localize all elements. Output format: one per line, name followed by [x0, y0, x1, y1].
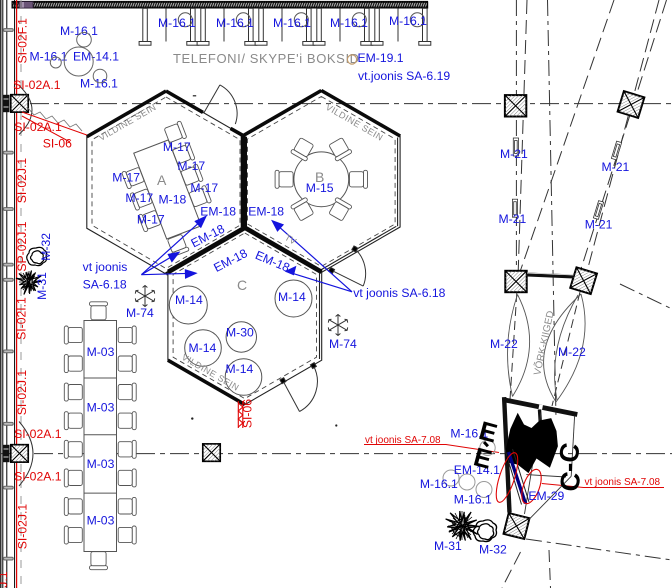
- svg-text:SI-02J.1: SI-02J.1: [15, 158, 29, 204]
- svg-text:vt joonis: vt joonis: [83, 260, 128, 274]
- svg-text:M-31: M-31: [434, 539, 462, 553]
- svg-text:M-14: M-14: [226, 362, 254, 376]
- svg-text:SI-02A.1: SI-02A.1: [14, 120, 62, 134]
- svg-text:SI-06: SI-06: [43, 137, 72, 151]
- svg-text:SI-02A.1: SI-02A.1: [14, 470, 62, 484]
- svg-text:M-14: M-14: [189, 341, 217, 355]
- svg-text:SI-02F.1: SI-02F.1: [16, 18, 30, 64]
- svg-text:M-16.1: M-16.1: [80, 77, 118, 91]
- svg-text:EM-18: EM-18: [248, 205, 284, 219]
- svg-text:M-16.1: M-16.1: [389, 14, 427, 28]
- svg-text:M-14: M-14: [278, 290, 306, 304]
- svg-text:SI-02J.1: SI-02J.1: [15, 370, 29, 416]
- svg-text:vt joonis SA-6.18: vt joonis SA-6.18: [353, 286, 445, 300]
- svg-text:M-32: M-32: [39, 233, 53, 261]
- svg-text:M-17: M-17: [125, 191, 153, 205]
- svg-text:M-17: M-17: [112, 171, 140, 185]
- svg-text:M-03: M-03: [87, 345, 115, 359]
- svg-text:M-15: M-15: [306, 181, 334, 195]
- svg-text:EM-19.1: EM-19.1: [358, 51, 404, 65]
- svg-text:vt joonis SA-7.08: vt joonis SA-7.08: [365, 435, 441, 446]
- svg-text:SA-6.18: SA-6.18: [83, 278, 127, 292]
- svg-text:SP-02J.1: SP-02J.1: [15, 221, 29, 271]
- svg-text:vt joonis SA-7.08: vt joonis SA-7.08: [585, 477, 661, 488]
- svg-text:M-21: M-21: [602, 160, 630, 174]
- svg-text:M-16.1: M-16.1: [216, 16, 254, 30]
- svg-text:SI-02I.1: SI-02I.1: [15, 297, 29, 340]
- svg-text:M-16.1: M-16.1: [330, 16, 368, 30]
- svg-text:C: C: [237, 277, 247, 293]
- svg-text:M-03: M-03: [87, 401, 115, 415]
- svg-text:M-03: M-03: [87, 457, 115, 471]
- svg-text:M-31: M-31: [35, 272, 49, 300]
- svg-text:M-17: M-17: [177, 159, 205, 173]
- svg-text:M-21: M-21: [585, 218, 613, 232]
- svg-text:M-16.1: M-16.1: [454, 493, 492, 507]
- svg-text:M-16.1: M-16.1: [420, 477, 458, 491]
- svg-text:M-21: M-21: [499, 212, 527, 226]
- svg-text:M-74: M-74: [329, 337, 357, 351]
- svg-text:M-17: M-17: [190, 181, 218, 195]
- svg-text:M-16.1: M-16.1: [60, 24, 98, 38]
- svg-text:M-16.1: M-16.1: [158, 16, 196, 30]
- svg-text:SI-02A.1: SI-02A.1: [14, 427, 62, 441]
- svg-text:SP-02J.1: SP-02J.1: [0, 571, 10, 588]
- svg-text:EM-29: EM-29: [528, 489, 564, 503]
- svg-text:M-14: M-14: [175, 293, 203, 307]
- svg-text:SI-02A.1: SI-02A.1: [13, 78, 61, 92]
- svg-text:M-22: M-22: [490, 337, 518, 351]
- svg-text:M-17: M-17: [137, 213, 165, 227]
- svg-text:M-32: M-32: [479, 543, 507, 557]
- svg-text:M-30: M-30: [226, 326, 254, 340]
- svg-text:EM-18: EM-18: [200, 205, 236, 219]
- svg-text:SI-02J.1: SI-02J.1: [16, 504, 30, 550]
- svg-text:A: A: [157, 172, 167, 188]
- svg-text:M-74: M-74: [126, 306, 154, 320]
- svg-text:EM-14.1: EM-14.1: [73, 50, 119, 64]
- svg-text:M-18: M-18: [159, 193, 187, 207]
- svg-text:M-21: M-21: [500, 147, 528, 161]
- svg-text:M-17: M-17: [163, 140, 191, 154]
- svg-text:SI-06: SI-06: [241, 399, 255, 428]
- svg-text:TELEFONI/ SKYPE'i BOKSID: TELEFONI/ SKYPE'i BOKSID: [173, 51, 360, 66]
- svg-text:vt.joonis SA-6.19: vt.joonis SA-6.19: [358, 69, 450, 83]
- svg-text:M-22: M-22: [558, 345, 586, 359]
- svg-text:M-16.1: M-16.1: [30, 50, 68, 64]
- svg-text:M-03: M-03: [87, 514, 115, 528]
- svg-text:M-16.1: M-16.1: [273, 16, 311, 30]
